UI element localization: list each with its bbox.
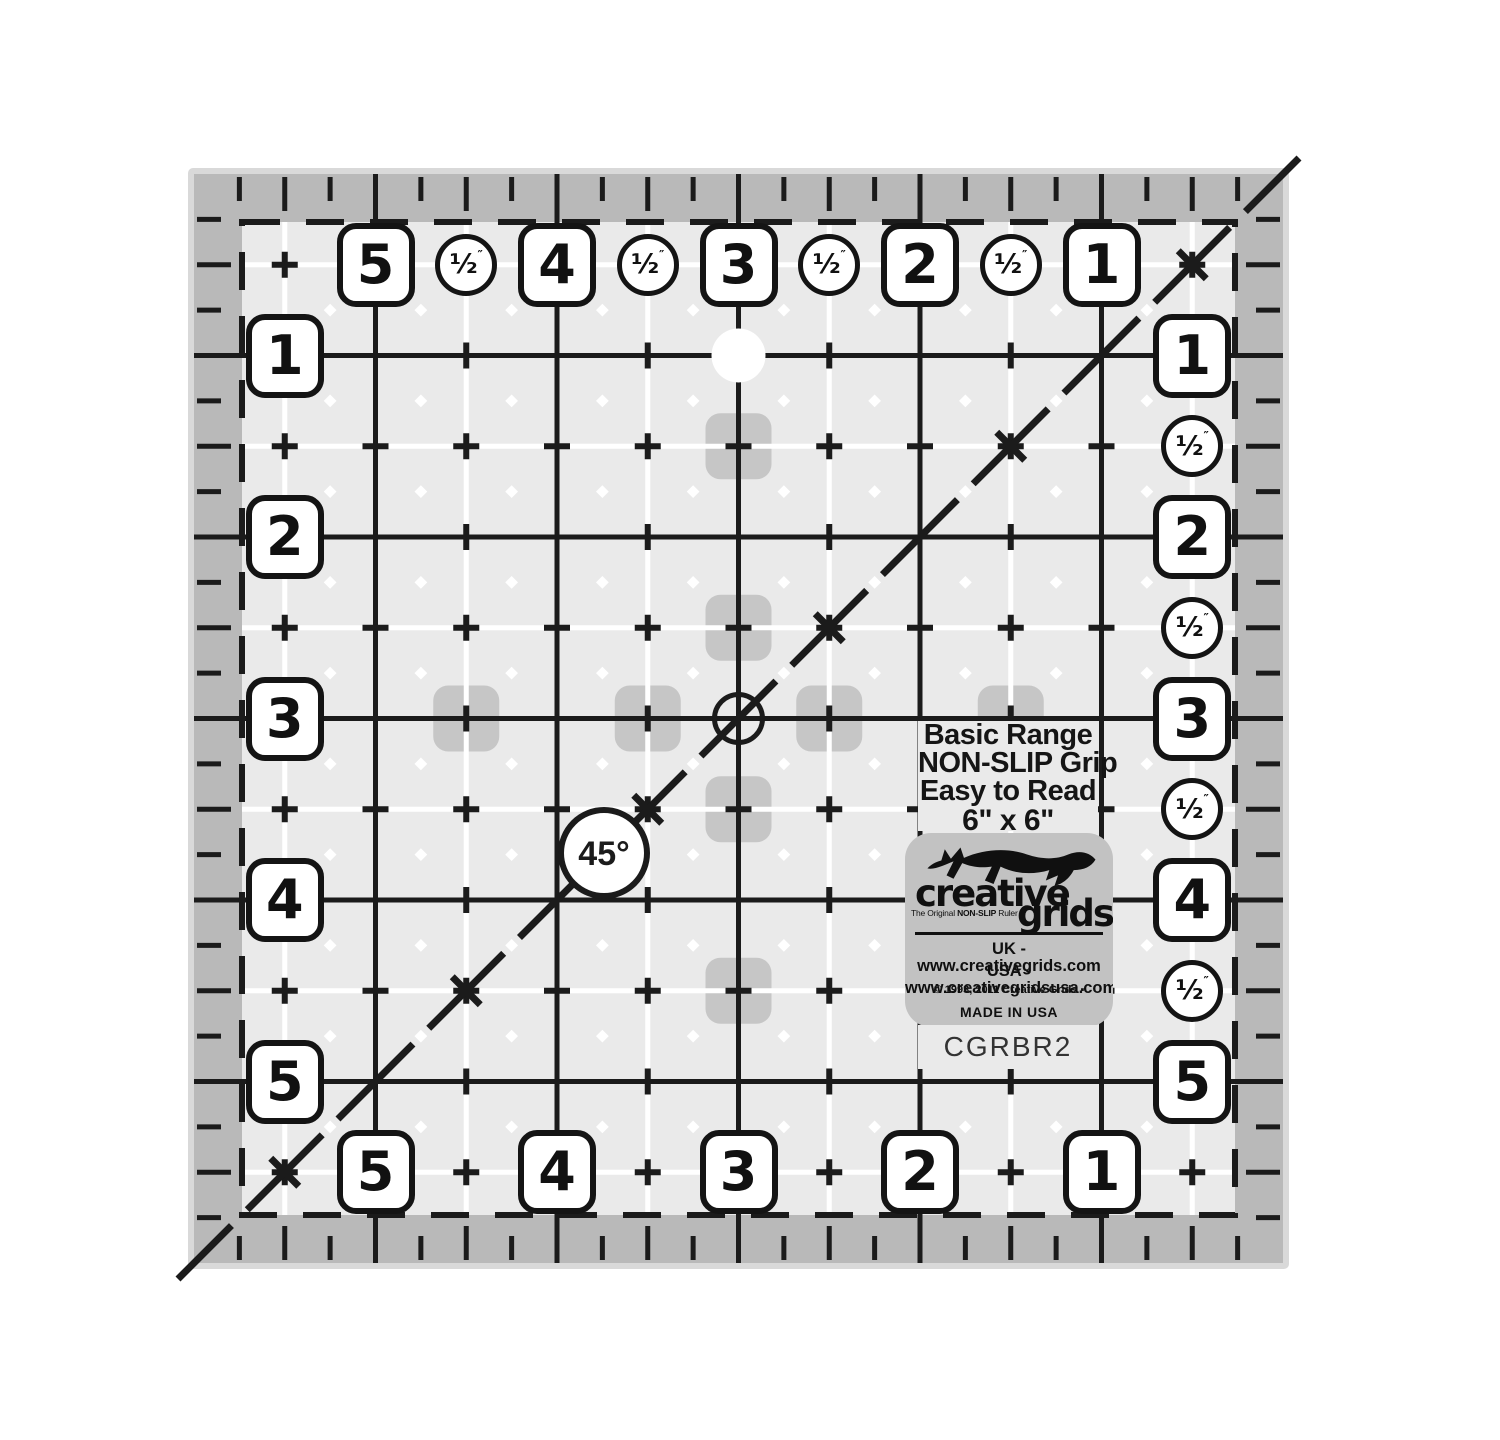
ruler-badge-top-4: 4 [518, 223, 596, 307]
ruler-badge-bottom-1: 1 [1063, 1130, 1141, 1214]
ruler-badge-bottom-5: 5 [337, 1130, 415, 1214]
product-photo: 45° 54321543211234512345½″½″½″½″½″½″½″½″… [0, 0, 1500, 1440]
ruler-badge-left-4: 4 [246, 858, 324, 942]
half-inch-marker-right: ½″ [1161, 778, 1223, 840]
ruler-badge-left-2: 2 [246, 495, 324, 579]
creative-grids-logo-panel: creative grids® The Original NON-SLIP Ru… [905, 833, 1113, 1027]
ruler-badge-top-2: 2 [881, 223, 959, 307]
brand-word-grids-text: grids [1017, 892, 1113, 935]
feature-grip: NON-SLIP Grip [918, 749, 1098, 777]
logo-divider [915, 932, 1103, 935]
brand-word-grids: grids® [1017, 895, 1113, 932]
half-inch-marker-right: ½″ [1161, 960, 1223, 1022]
half-inch-marker-top: ½″ [980, 234, 1042, 296]
ruler-badge-right-2: 2 [1153, 495, 1231, 579]
size-label: 6" x 6" [918, 807, 1098, 835]
series-title: Basic Range [918, 721, 1098, 749]
tagline-suffix: Ruler [998, 908, 1017, 918]
brand-tagline: The Original NON-SLIP Ruler [911, 909, 1017, 918]
ruler-badge-right-5: 5 [1153, 1040, 1231, 1124]
quilting-ruler: 45° 54321543211234512345½″½″½″½″½″½″½″½″… [194, 174, 1283, 1263]
ruler-grid-graphic: 45° [194, 174, 1283, 1263]
half-inch-marker-right: ½″ [1161, 597, 1223, 659]
half-inch-marker-top: ½″ [617, 234, 679, 296]
product-description: Basic Range NON-SLIP Grip Easy to Read 6… [918, 721, 1098, 831]
model-number: CGRBR2 [918, 1025, 1098, 1069]
ruler-badge-bottom-2: 2 [881, 1130, 959, 1214]
feature-read: Easy to Read [918, 777, 1098, 805]
ruler-badge-left-5: 5 [246, 1040, 324, 1124]
copyright-line: © 1993, 2011 Creative Grids ▪ [905, 985, 1113, 996]
half-inch-marker-top: ½″ [798, 234, 860, 296]
ruler-badge-left-1: 1 [246, 314, 324, 398]
tagline-bold: NON-SLIP [957, 908, 996, 918]
ruler-badge-right-4: 4 [1153, 858, 1231, 942]
half-inch-marker-right: ½″ [1161, 415, 1223, 477]
ruler-badge-top-1: 1 [1063, 223, 1141, 307]
ruler-badge-bottom-3: 3 [700, 1130, 778, 1214]
tagline-prefix: The Original [911, 908, 955, 918]
forty-five-degree-label: 45° [578, 835, 629, 873]
ruler-badge-top-5: 5 [337, 223, 415, 307]
ruler-badge-right-3: 3 [1153, 677, 1231, 761]
made-in-usa-line: MADE IN USA [905, 1005, 1113, 1019]
ruler-badge-top-3: 3 [700, 223, 778, 307]
half-inch-marker-top: ½″ [435, 234, 497, 296]
ruler-badge-right-1: 1 [1153, 314, 1231, 398]
ruler-badge-left-3: 3 [246, 677, 324, 761]
hanging-hole [712, 329, 766, 383]
ruler-badge-bottom-4: 4 [518, 1130, 596, 1214]
